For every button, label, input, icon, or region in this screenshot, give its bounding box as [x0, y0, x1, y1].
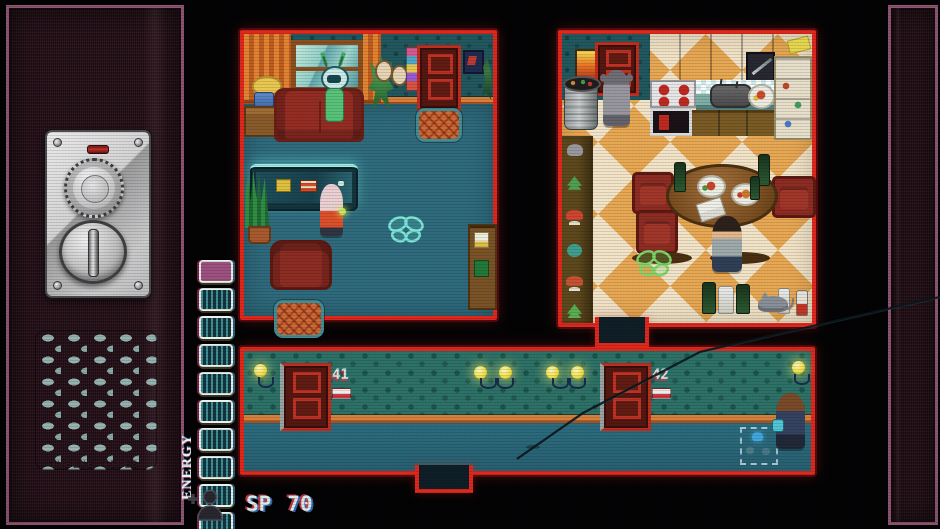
energy-segment: [199, 372, 233, 395]
lamp-stem: [480, 378, 497, 389]
screw-icon: [53, 281, 62, 290]
man-npc[interactable]: [712, 216, 742, 272]
floor-scuff: [526, 445, 540, 449]
energy-segment: [199, 344, 233, 367]
plant-pot: [248, 226, 271, 244]
brand-label: TWELVE TILES: [9, 460, 181, 470]
crt-scene: TWELVE TILES: [0, 0, 940, 529]
lamp-stem: [794, 374, 810, 385]
player-character: [776, 393, 805, 449]
shelf-item: [566, 276, 583, 286]
floor-bottle: [796, 290, 808, 316]
couch: [274, 88, 364, 142]
floor-jug: [718, 286, 734, 314]
floor-bottle: [702, 282, 716, 314]
tuning-dial[interactable]: [64, 158, 124, 218]
picture-frame: [463, 50, 484, 74]
grey-cat[interactable]: [758, 296, 788, 312]
shelf-rack: [562, 136, 593, 323]
oven-glow: [659, 115, 669, 130]
console-left-panel: TWELVE TILES: [6, 5, 184, 525]
screw-icon: [53, 138, 62, 147]
door-42[interactable]: [600, 363, 651, 431]
armchair: [270, 240, 332, 290]
person-plus-icon: [184, 486, 228, 522]
speaker-grille: [35, 330, 157, 470]
energy-segment: [199, 400, 233, 423]
door-41-number: 41: [332, 368, 349, 382]
energy-segment: [199, 260, 233, 283]
energy-segment: [199, 456, 233, 479]
wall-lamp: [254, 364, 274, 388]
alien-npc[interactable]: [320, 64, 346, 124]
lamp-stems: [480, 378, 514, 389]
stove: [650, 80, 696, 108]
grey-npc-ears: [600, 74, 607, 82]
wine-bottle: [674, 162, 686, 192]
side-table: [244, 106, 276, 137]
held-item: [339, 208, 346, 215]
selector-knob[interactable]: [59, 220, 127, 284]
energy-segment: [199, 316, 233, 339]
oven: [650, 108, 692, 136]
energy-segment: [199, 428, 233, 451]
sink-pot: [710, 84, 752, 108]
lower-cabinets: [692, 110, 776, 136]
held-jar: [772, 419, 784, 432]
butterfly-marker[interactable]: [386, 214, 426, 245]
lamp-stem: [552, 378, 569, 389]
lamp-bulb-icon: [792, 361, 805, 374]
shelf-item: [567, 304, 582, 318]
food-plate: [748, 84, 775, 109]
lamp-stem: [258, 377, 274, 388]
fridge-shelf: [774, 56, 812, 140]
energy-segment: [199, 288, 233, 311]
tv-item-yellow: [276, 179, 291, 192]
floor-rug: [274, 300, 324, 338]
dig-marker[interactable]: [740, 427, 778, 465]
screw-icon: [134, 281, 143, 290]
door-mat: [416, 108, 462, 142]
dig-item: [752, 432, 763, 441]
sp-value: 70: [287, 492, 312, 516]
hallway: 41 42: [240, 347, 815, 475]
door-42-sign: [652, 388, 671, 399]
lamp-stem: [497, 378, 514, 389]
door-41-sign: [332, 388, 351, 399]
door-42-number: 42: [652, 368, 669, 382]
shelf-item: [567, 176, 582, 190]
lamp-stem: [569, 378, 586, 389]
knife-icon: [752, 58, 773, 75]
console-right-panel: [888, 5, 938, 525]
girl-npc[interactable]: [320, 184, 343, 236]
lamp-bulb-icon: [254, 364, 267, 377]
wall-lamp: [792, 361, 810, 385]
table-plate: [697, 175, 726, 198]
hud-bottom-row: SP 70: [184, 486, 313, 522]
sp-display: SP 70: [246, 492, 313, 516]
tv-item-red: [300, 180, 317, 192]
kitchen-doorway[interactable]: [595, 317, 649, 347]
door-41[interactable]: [280, 363, 331, 431]
cabinet-sheen: [895, 8, 901, 522]
cutting-board: [746, 52, 775, 82]
book: [474, 260, 489, 277]
wine-bottle: [750, 176, 760, 200]
kitchen: [558, 30, 816, 327]
dig-rubble: [746, 447, 754, 454]
control-plate: [45, 130, 151, 298]
shelf-item: [566, 210, 583, 220]
shelf-item: [567, 244, 582, 257]
grey-npc[interactable]: [603, 70, 630, 126]
alien-body: [325, 88, 344, 122]
shelf-item: [567, 144, 583, 156]
trash-can: [564, 82, 598, 130]
floor-bottle: [736, 284, 750, 314]
lamp-stems: [552, 378, 586, 389]
alien-visor: [327, 75, 341, 83]
book: [474, 232, 489, 248]
cat-ear: [761, 292, 769, 298]
power-indicator-light: [87, 145, 109, 154]
hallway-doorway[interactable]: [415, 465, 473, 493]
trash-lid: [563, 76, 601, 92]
screw-icon: [134, 138, 143, 147]
wall-portrait: [375, 60, 393, 82]
picture-art: [467, 56, 477, 65]
dining-chair: [772, 176, 816, 218]
living-room-door[interactable]: [417, 45, 461, 111]
sp-label: SP: [246, 492, 271, 516]
tv-item-small: [338, 181, 344, 186]
bookshelf: [468, 224, 497, 310]
living-room: [240, 30, 497, 320]
butterfly-marker[interactable]: [634, 248, 674, 279]
